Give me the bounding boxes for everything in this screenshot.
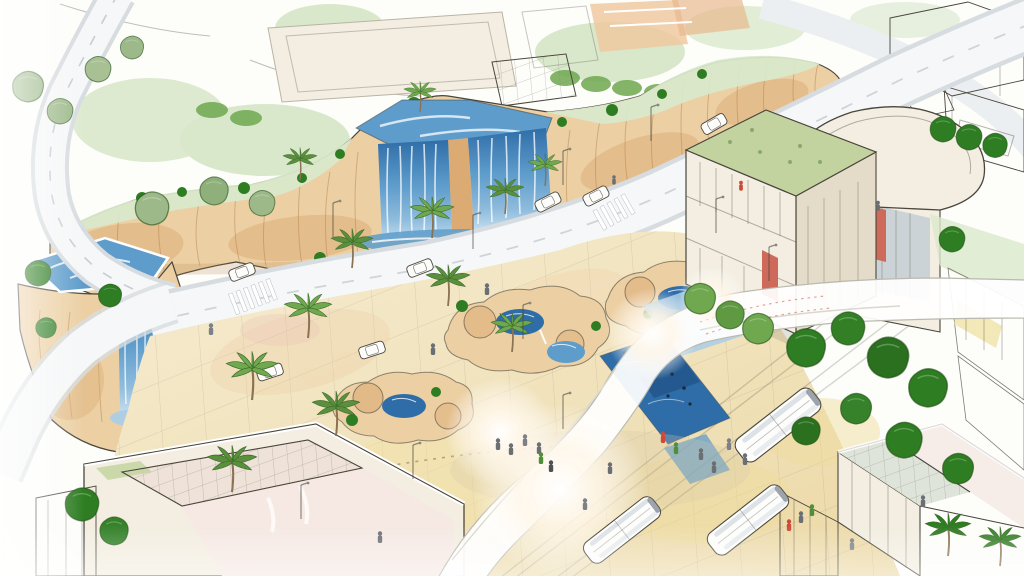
waterfall-cascade — [378, 140, 452, 240]
round-tree — [685, 283, 716, 314]
person — [523, 434, 527, 446]
person — [496, 438, 500, 450]
round-tree — [943, 453, 974, 484]
round-tree — [831, 312, 864, 345]
round-tree — [930, 117, 956, 143]
person — [583, 498, 587, 510]
person — [712, 461, 716, 473]
round-tree — [135, 192, 168, 225]
round-tree — [939, 227, 965, 253]
round-tree — [983, 133, 1007, 157]
round-tree — [841, 393, 872, 424]
person — [739, 181, 743, 191]
architectural-rendering: Hand-drawn watercolor aerial rendering o… — [0, 0, 1024, 576]
person — [727, 438, 731, 450]
round-tree — [792, 417, 820, 445]
round-tree — [867, 337, 908, 378]
person — [810, 504, 814, 516]
round-tree — [956, 125, 982, 151]
round-tree — [120, 36, 143, 59]
round-tree — [909, 369, 948, 407]
rendering-canvas: Hand-drawn watercolor aerial rendering o… — [0, 0, 1024, 576]
person — [549, 460, 553, 472]
round-tree — [787, 329, 826, 367]
greenhouse-pavilion — [492, 54, 576, 106]
person — [921, 495, 925, 507]
person — [209, 323, 213, 335]
person — [612, 175, 616, 184]
person — [537, 442, 541, 454]
round-tree — [743, 313, 774, 344]
sun-flare — [445, 377, 555, 487]
person — [743, 453, 747, 465]
round-tree — [200, 177, 228, 205]
person — [699, 448, 703, 460]
person — [661, 431, 665, 443]
person — [876, 201, 880, 211]
round-tree — [98, 284, 121, 307]
round-tree — [886, 422, 922, 458]
person — [509, 443, 513, 455]
person — [608, 462, 612, 474]
round-tree — [716, 301, 744, 329]
round-tree — [85, 57, 111, 83]
person — [674, 442, 678, 454]
round-tree — [249, 191, 275, 217]
person — [485, 283, 489, 295]
person — [431, 343, 435, 355]
person — [799, 511, 803, 523]
person — [539, 452, 543, 464]
